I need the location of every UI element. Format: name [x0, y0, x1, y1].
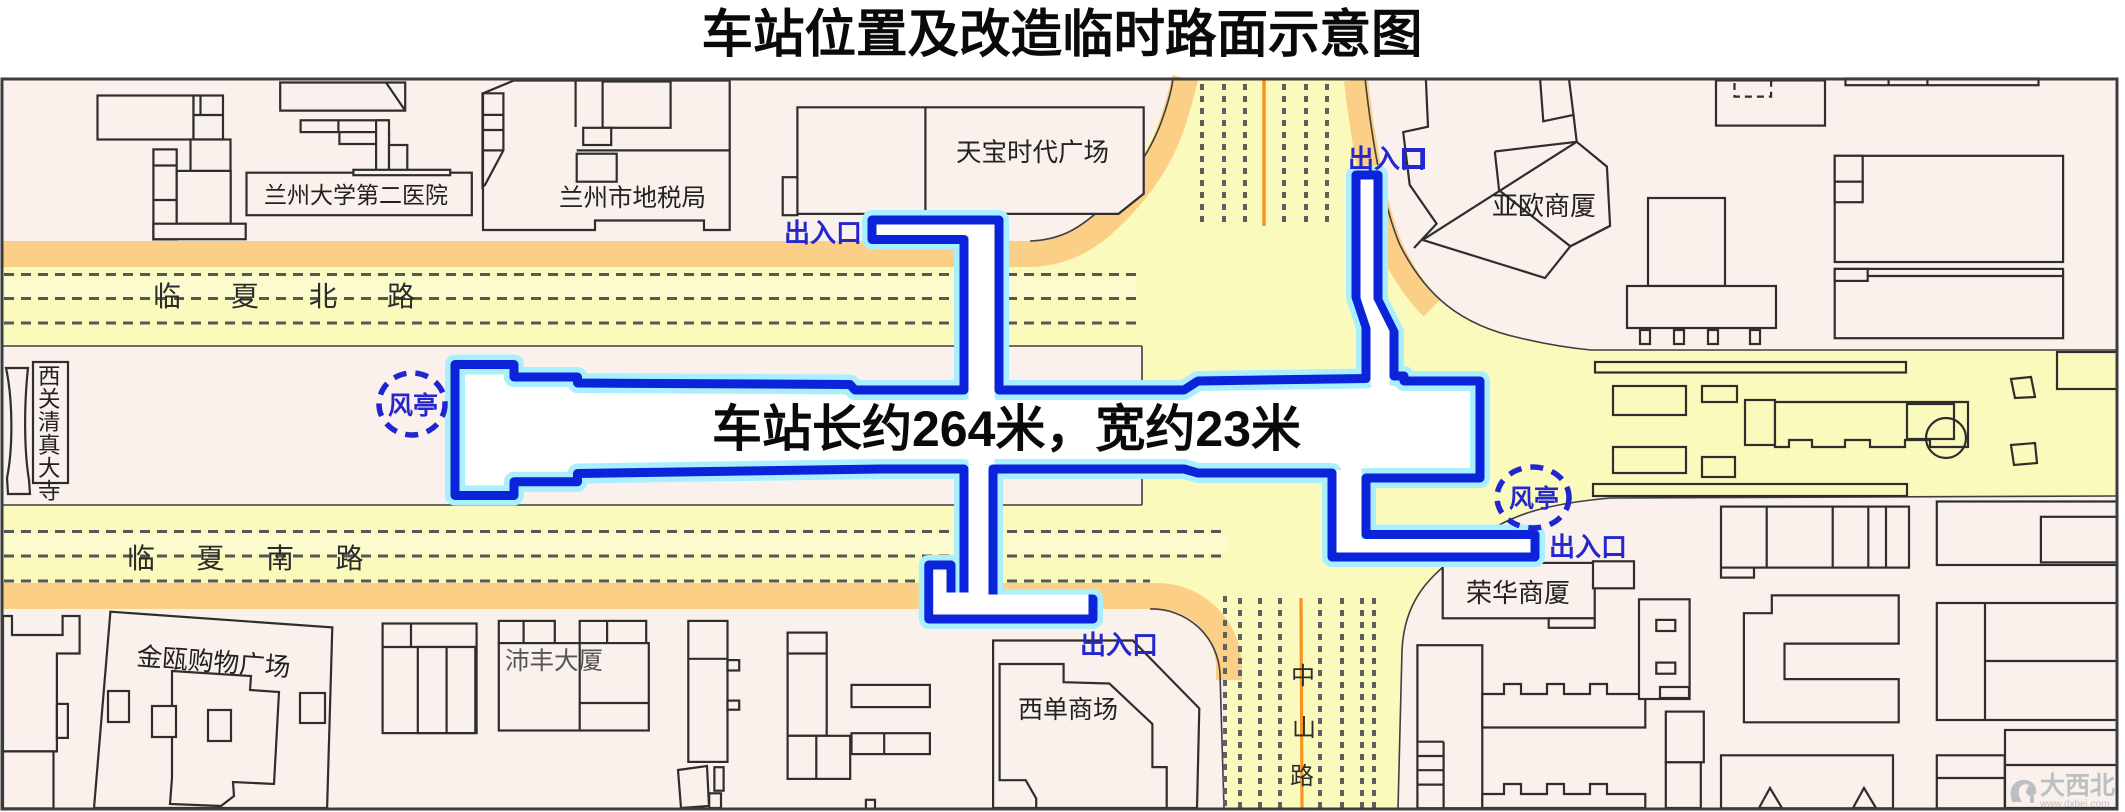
svg-text:兰州市地税局: 兰州市地税局 [559, 184, 706, 212]
svg-text:出入口: 出入口 [1080, 630, 1158, 660]
svg-text:亚欧商厦: 亚欧商厦 [1492, 191, 1596, 221]
svg-text:天宝时代广场: 天宝时代广场 [956, 139, 1109, 167]
svg-text:路: 路 [1290, 763, 1314, 790]
svg-text:西单商场: 西单商场 [1018, 696, 1118, 724]
svg-text:西: 西 [38, 364, 61, 389]
svg-text:大: 大 [38, 456, 61, 481]
svg-text:沛丰大厦: 沛丰大厦 [505, 647, 603, 675]
svg-text:寺: 寺 [38, 479, 61, 504]
svg-text:荣华商厦: 荣华商厦 [1466, 578, 1570, 608]
svg-text:风亭: 风亭 [388, 391, 438, 420]
svg-text:真: 真 [38, 433, 61, 458]
svg-text:车站长约264米，宽约23米: 车站长约264米，宽约23米 [712, 401, 1301, 457]
svg-text:大西北: 大西北 [2040, 772, 2115, 800]
svg-text:临夏南路: 临夏南路 [127, 543, 405, 574]
svg-text:车站位置及改造临时路面示意图: 车站位置及改造临时路面示意图 [701, 5, 1422, 63]
svg-text:兰州大学第二医院: 兰州大学第二医院 [264, 182, 448, 208]
svg-text:关: 关 [38, 387, 61, 412]
svg-text:清: 清 [38, 410, 61, 435]
svg-text:出入口: 出入口 [1348, 144, 1426, 174]
svg-text:出入口: 出入口 [784, 218, 862, 248]
svg-text:出入口: 出入口 [1549, 532, 1627, 562]
svg-text:山: 山 [1292, 715, 1316, 742]
svg-text:临夏北路: 临夏北路 [153, 281, 465, 312]
svg-text:中: 中 [1291, 663, 1315, 690]
svg-text:风亭: 风亭 [1509, 484, 1559, 513]
